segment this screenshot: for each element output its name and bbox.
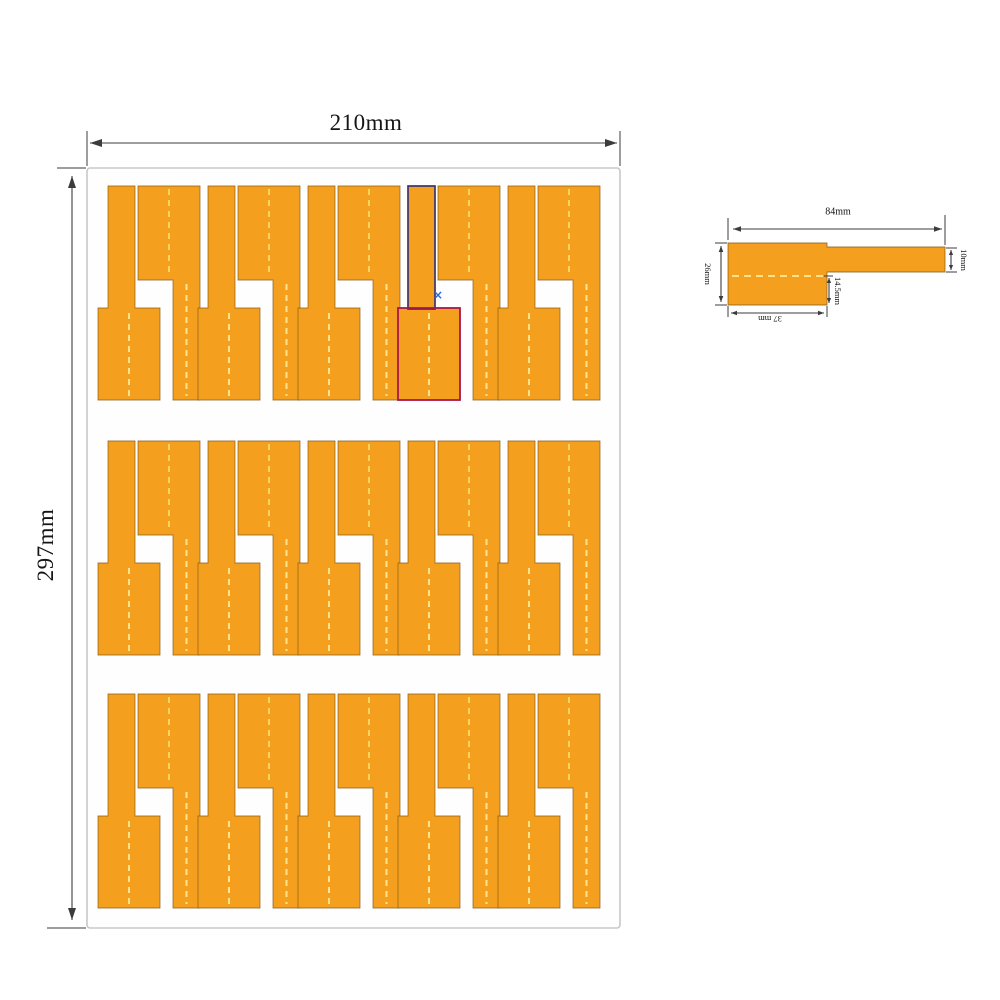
dimension-arrowhead — [68, 908, 76, 920]
a4-sheet — [87, 168, 620, 928]
dimension-arrowhead — [68, 176, 76, 188]
dimension-arrowhead — [818, 311, 824, 316]
detail-below-fold-dimension-label: 14.5mm — [833, 277, 843, 305]
dimension-arrowhead — [719, 246, 724, 252]
dimension-arrowhead — [733, 226, 741, 232]
detail-flag-length-dimension-label: 37 mm — [758, 314, 782, 324]
selection-cursor-marker: × — [433, 288, 443, 302]
sheet-rect — [87, 168, 620, 928]
detail-flag-height-dimension-label: 26mm — [703, 263, 713, 285]
dimension-arrowhead — [90, 139, 102, 147]
dimension-arrowhead — [731, 311, 737, 316]
cable-label-sheet-diagram: 210mm 297mm 84mm 10mm 26mm 37 mm 14.5mm … — [0, 0, 1000, 1000]
dimension-arrowhead — [949, 250, 953, 255]
dimension-arrowhead — [719, 296, 724, 302]
diagram-graphics — [0, 0, 1000, 1000]
detail-length-dimension-label: 84mm — [825, 207, 851, 218]
dimension-arrowhead — [934, 226, 942, 232]
dimension-arrowhead — [949, 265, 953, 270]
sheet-height-dimension-label: 297mm — [33, 509, 59, 582]
dimension-arrowhead — [605, 139, 617, 147]
dimension-arrowhead — [827, 298, 831, 303]
detail-tail-width-dimension-label: 10mm — [959, 249, 969, 271]
sheet-width-dimension-label: 210mm — [330, 110, 403, 136]
dimension-arrowhead — [827, 278, 831, 283]
